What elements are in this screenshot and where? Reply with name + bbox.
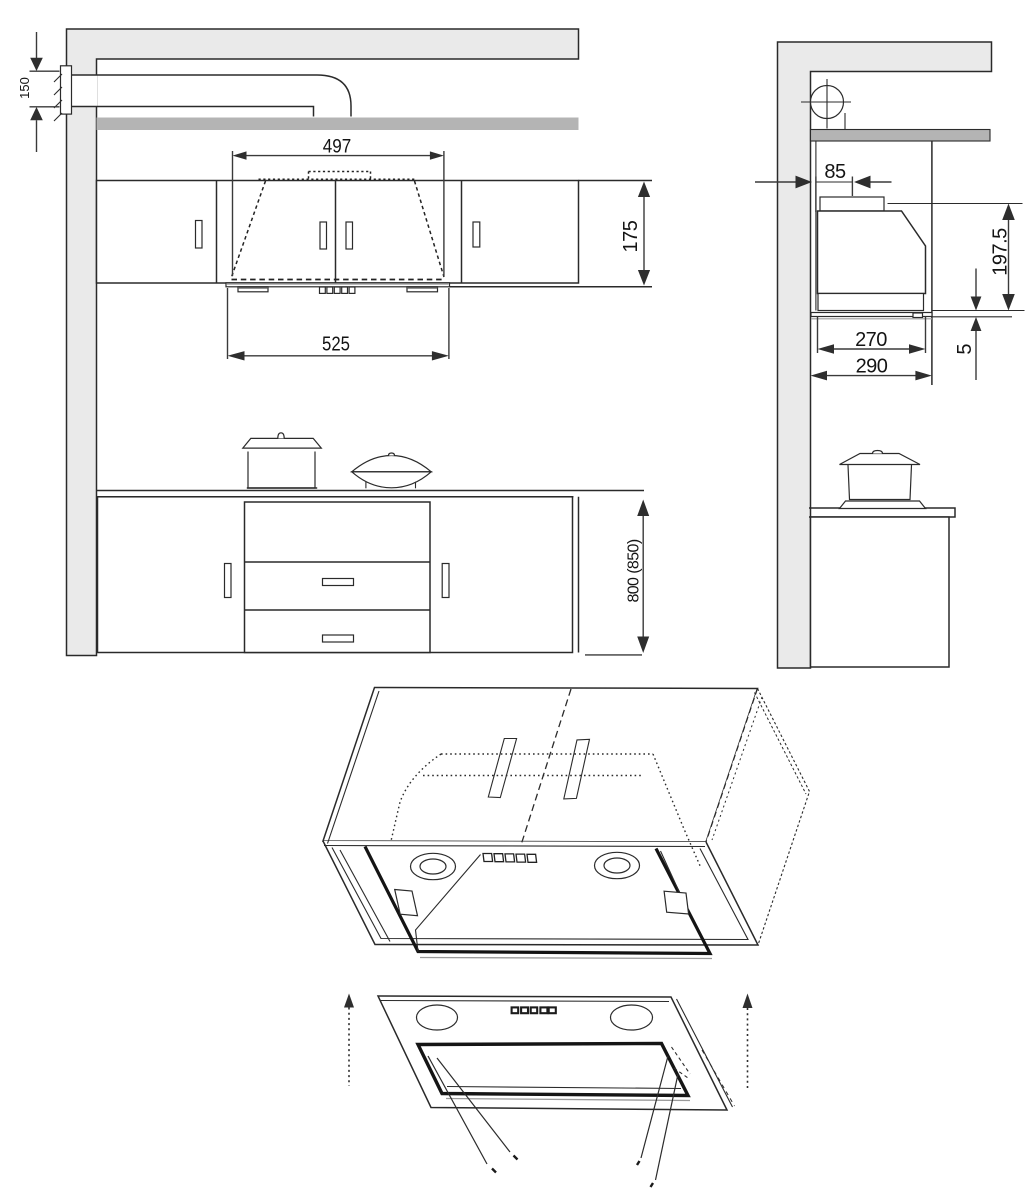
svg-text:197.5: 197.5 — [990, 228, 1012, 276]
svg-text:5: 5 — [954, 343, 976, 354]
svg-text:150: 150 — [17, 77, 32, 99]
svg-text:290: 290 — [856, 356, 888, 378]
svg-text:800 (850): 800 (850) — [626, 539, 643, 602]
svg-text:175: 175 — [620, 220, 642, 252]
svg-text:85: 85 — [824, 161, 846, 183]
svg-text:270: 270 — [855, 329, 887, 351]
svg-text:497: 497 — [323, 136, 352, 158]
svg-text:525: 525 — [322, 334, 350, 356]
